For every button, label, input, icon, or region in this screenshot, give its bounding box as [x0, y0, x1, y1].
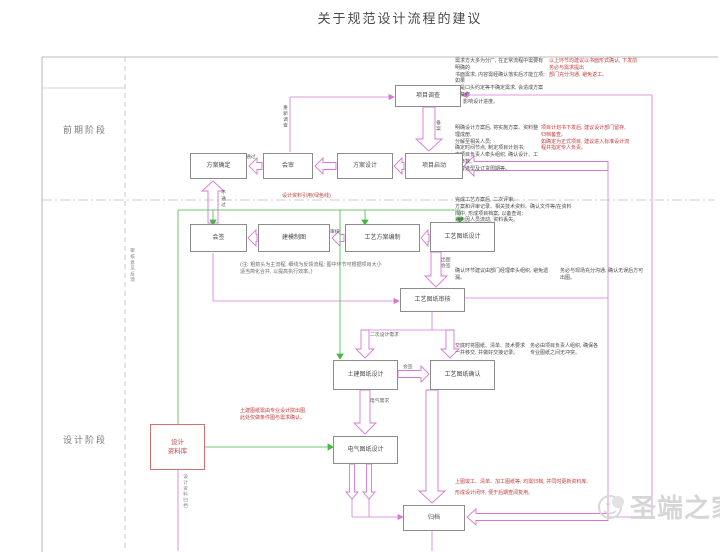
annotation-handover-black: 交底时将图纸、清单、技术要求 一并移交, 并做好交接记录。: [455, 343, 527, 357]
label-countersign2: 会签: [403, 365, 413, 371]
box-drawing-confirm: 工艺图纸确认: [430, 360, 495, 390]
label-archive-flow: 设计资料归档: [181, 474, 187, 509]
box-archive: 归档: [403, 505, 465, 531]
label-secondary-need: 二次设计需求: [370, 333, 399, 339]
label-plot-sign: 出图 会签: [441, 258, 451, 270]
annotation-archive-red: 上图竣工、清单、加工图纸等, 均需归档, 并同时更新资料库, 形成设计闭环, 便…: [455, 477, 615, 498]
arrow-kickoff-to-scheme: [394, 158, 404, 174]
phase-label-design: 设计阶段: [63, 433, 107, 446]
box-project-kickoff: 项目启动: [405, 153, 463, 179]
box-process-drawing: 工艺图纸设计: [430, 222, 495, 252]
label-pass: 通过: [246, 155, 256, 161]
box-project-survey: 项目调查: [395, 85, 461, 107]
annotation-top-black: 需求方大多为分厂, 在正常流程中需要有明确的 书面需求, 内容需经确认落实后才能…: [455, 58, 547, 105]
annotation-civil-red: 土建图纸需由专业设计院出图, 此处仅做条件图与需求确认。: [240, 408, 325, 422]
arrow-confirm-to-archive: [419, 390, 445, 503]
annotation-note: (注: 粗箭头为主流程, 细线为反馈流程; 图中环节可根据项目大小 适当简化合并…: [240, 262, 405, 276]
annotation-plan-black: 完成工艺方案后, 二次评审; 方案和评审记录、相关技术资料、确认文件等/在资料 …: [455, 197, 595, 224]
annotation-confirm-black: 确认环节建议由部门经理牵头组织, 避免遗漏。: [455, 268, 555, 282]
annotation-top-red: 以上环节均建议以书面形式确认, 下发前务必与需求提出 部门充分沟通, 避免返工。: [549, 58, 641, 78]
phase-label-early: 前期阶段: [63, 123, 107, 136]
label-fail: 不通过: [219, 190, 225, 207]
box-design-library: 设计 资料库: [150, 424, 205, 470]
box-scheme-confirm: 方案确定: [190, 153, 247, 179]
arrow-civil-to-electrical: [354, 390, 376, 434]
annotation-confirm-black2: 务必与现场充分沟通, 确认无误后方可出图。: [560, 268, 648, 282]
box-modeling: 建模制图: [258, 224, 330, 252]
arrow-scheme-to-review: [315, 158, 336, 174]
box-civil-drawing: 土建图纸设计: [333, 360, 398, 390]
box-electrical-drawing: 电气图纸设计: [333, 436, 398, 464]
arrow-electrical-down-2: [363, 464, 375, 499]
watermark: 圣端之家: [596, 488, 720, 525]
annotation-kickoff-black: 明确设计方案后, 将实施方案、资料整理成册, 分解至相关人员; 确定时间节点, …: [455, 125, 543, 172]
arrow-modeling-to-countersign: [248, 230, 257, 246]
annotation-green-line: 设计资料引用(绿色线): [282, 193, 377, 200]
box-joint-review: 会审: [263, 153, 313, 179]
annotation-handover-black2: 务必由项目负责人组织, 确保各 专业图纸之间无冲突。: [530, 343, 612, 357]
drawing-page: 关于规范设计流程的建议: [0, 0, 720, 552]
arrow-feedback-to-archive: [467, 509, 608, 525]
arrow-electrical-down-1: [346, 464, 358, 499]
box-process-plan: 工艺方案编制: [345, 224, 420, 252]
box-countersign: 会签: [190, 224, 247, 252]
arrow-drawing-to-plan: [421, 230, 429, 246]
label-resurvey: 重新调查: [281, 105, 287, 128]
box-scheme-design: 方案设计: [337, 153, 393, 179]
label-elec-need: 电气需求: [370, 399, 389, 405]
watermark-logo-icon: [596, 490, 630, 524]
label-feedback-flow: 审核意见反馈: [128, 248, 134, 283]
watermark-text: 圣端之家: [630, 488, 720, 525]
annotation-kickoff-red: 项目计划书下发后, 建议设计部门留存, 归档备查。 如确定为正式项目, 建议进入…: [541, 125, 633, 152]
box-drawing-review: 工艺图纸审核: [400, 288, 465, 312]
label-record: 备案: [434, 120, 440, 132]
label-review: 审核: [330, 230, 340, 236]
